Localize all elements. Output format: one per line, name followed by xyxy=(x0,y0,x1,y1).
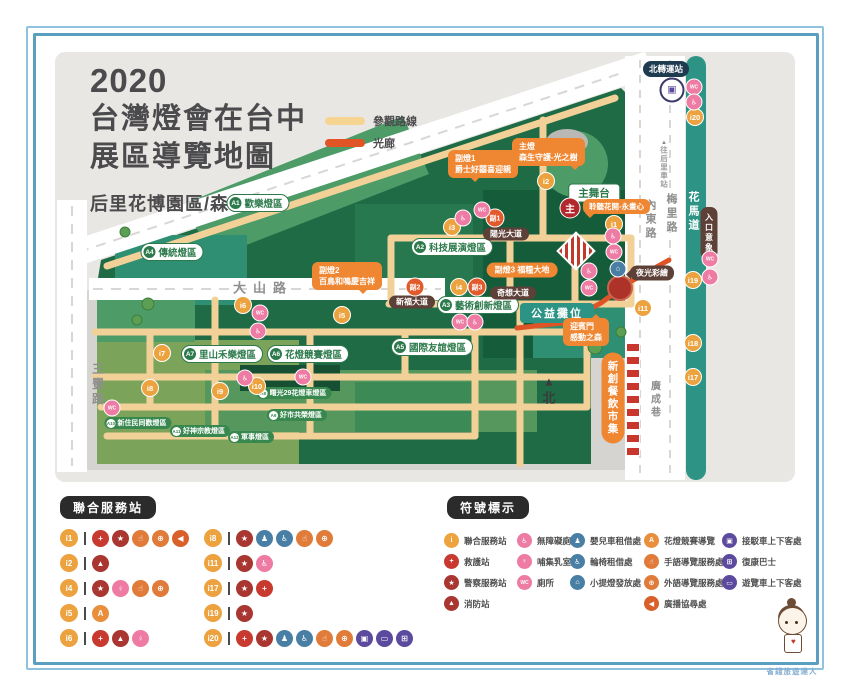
service-badge-i5: i5 xyxy=(60,604,78,622)
symbol-label-rehab_bus: 復康巴士 xyxy=(742,556,776,568)
tour-bus-stop-icon: ▭ xyxy=(722,575,737,590)
info-badge-i20: i20 xyxy=(686,108,704,126)
sign-language-icon: ☝ xyxy=(132,530,149,547)
service-divider-i2 xyxy=(84,557,86,570)
service-divider-i11 xyxy=(228,557,230,570)
service-row-i8: i8★♟♿☝⊕ xyxy=(204,528,333,548)
symbol-label-sign_language: 手語導覽服務處 xyxy=(664,556,724,568)
toilet-icon: WC xyxy=(104,400,121,417)
small-zone-circle-A11: A11 xyxy=(172,427,181,436)
service-row-i17: i17★+ xyxy=(204,578,273,598)
symbol-item-stroller_rental: ♟嬰兒車租借處 xyxy=(570,533,641,548)
accessible-toilet-icon: ♿ xyxy=(605,228,622,245)
callout-sub1-text: 爵士好囍喜迎親 xyxy=(455,164,511,175)
zone-circle-A6: A6 xyxy=(270,348,282,360)
sign-language-icon: ☝ xyxy=(644,554,659,569)
zone-label-A2: 科技展演燈區 xyxy=(429,240,486,254)
police-icon: ★ xyxy=(444,575,459,590)
accessible-toilet-icon: ♿ xyxy=(250,323,267,340)
symbol-label-competition_guide: 花燈競賽導覽 xyxy=(664,535,715,547)
zone-label-A4: 傳統燈區 xyxy=(158,245,196,259)
nursing-room-icon: ♀ xyxy=(132,630,149,647)
fire-icon: ▲ xyxy=(92,555,109,572)
symbol-label-wheelchair_rental: 輪椅租借處 xyxy=(590,556,633,568)
small-zone-label-A11: 好神宗教燈區 xyxy=(183,426,225,436)
accessible-toilet-icon: ♿ xyxy=(237,370,254,387)
info-badge-i5: i5 xyxy=(333,306,351,324)
avenue-pill-1: 新福大道 xyxy=(389,296,435,309)
zone-pill-A7: A7里山禾樂燈區 xyxy=(181,345,263,363)
symbol-item-sign_language: ☝手語導覽服務處 xyxy=(644,554,724,569)
symbol-label-toilet: 廁所 xyxy=(537,577,554,589)
toilet-icon: WC xyxy=(474,202,491,219)
service-row-i6: i6+▲♀ xyxy=(60,628,149,648)
accessible-toilet-icon: ♿ xyxy=(517,533,532,548)
zone-label-A1: 歡樂燈區 xyxy=(244,196,282,210)
toilet-icon: WC xyxy=(581,280,598,297)
police-icon: ★ xyxy=(236,580,253,597)
wheelchair-rental-icon: ♿ xyxy=(276,530,293,547)
zone-circle-A5: A5 xyxy=(394,341,406,353)
toilet-icon: WC xyxy=(295,369,312,386)
toilet-icon: WC xyxy=(606,244,623,261)
service-divider-i6 xyxy=(84,632,86,645)
zone-label-A7: 里山禾樂燈區 xyxy=(199,347,256,361)
road-label-sanfeng: 三豐路 xyxy=(90,363,107,408)
service-badge-i11: i11 xyxy=(204,554,222,572)
callout-main-title: 主燈 xyxy=(519,141,578,152)
competition-guide-icon: A xyxy=(92,605,109,622)
zone-circle-A7: A7 xyxy=(184,348,196,360)
police-icon: ★ xyxy=(236,555,253,572)
accessible-toilet-icon: ♿ xyxy=(686,94,703,111)
first-aid-icon: + xyxy=(92,630,109,647)
foreign-language-icon: ⊕ xyxy=(152,580,169,597)
accessible-toilet-icon: ♿ xyxy=(702,269,719,286)
road-label-meili: 梅里路 xyxy=(663,193,679,235)
small-zone-pill-A9: A9好市共榮燈區 xyxy=(267,409,327,421)
small-zone-pill-A11: A11好神宗教燈區 xyxy=(170,425,230,437)
bus-terminal-icon: ▣ xyxy=(660,78,685,103)
route-legend-corridor: 光廊 xyxy=(325,132,417,154)
mascot-bun xyxy=(787,598,796,607)
rehab-bus-icon: ⊞ xyxy=(722,554,737,569)
info-badge-i17: i17 xyxy=(684,368,702,386)
service-badge-i6: i6 xyxy=(60,629,78,647)
avenue-pill-2: 奇想大道 xyxy=(490,287,536,300)
wheelchair-rental-icon: ♿ xyxy=(296,630,313,647)
symbol-item-first_aid: +救護站 xyxy=(444,554,490,569)
union-service-icon: i xyxy=(444,533,459,548)
food-market-pill: 新創餐飲市集 xyxy=(602,353,625,444)
avenue-pill-0: 陽光大道 xyxy=(483,228,529,241)
small-zone-label-A9: 好市共榮燈區 xyxy=(280,410,322,420)
toilet-icon: WC xyxy=(702,251,719,268)
title-block: 2020 台灣燈會在台中 展區導覽地圖 后里花博園區/森林園區 xyxy=(90,62,307,216)
symbol-label-first_aid: 救護站 xyxy=(464,556,490,568)
small-zone-label-A8: 曙光29花燈車燈區 xyxy=(270,388,327,398)
zone-pill-A5: A5國際友誼燈區 xyxy=(391,338,473,356)
night-paint-pill: 夜光彩繪 xyxy=(630,266,674,281)
road-label-guangcheng: 廣成巷 xyxy=(647,381,662,420)
light-corridor-swatch xyxy=(325,139,365,147)
nursing-room-icon: ♀ xyxy=(112,580,129,597)
service-badge-i8: i8 xyxy=(204,529,222,547)
service-row-i1: i1+★☝⊕◀ xyxy=(60,528,189,548)
accessible-toilet-icon: ♿ xyxy=(467,314,484,331)
title-year: 2020 xyxy=(90,62,307,100)
callout-sub2-title: 副燈2 xyxy=(319,265,375,276)
wheelchair-rental-icon: ♿ xyxy=(570,554,585,569)
symbol-label-nursing_room: 哺集乳室 xyxy=(537,556,571,568)
service-row-i2: i2▲ xyxy=(60,553,109,573)
visit-route-swatch xyxy=(325,117,365,125)
symbol-item-wheelchair_rental: ♿輪椅租借處 xyxy=(570,554,633,569)
compass-label: 北 xyxy=(542,388,555,407)
service-divider-i17 xyxy=(228,582,230,595)
foreign-language-icon: ⊕ xyxy=(336,630,353,647)
welcome-gate-marker xyxy=(607,275,633,301)
mascot-eyes xyxy=(785,621,788,624)
symbol-label-shuttle_stop: 接駁車上下客處 xyxy=(742,535,802,547)
small-zone-circle-A10: A10 xyxy=(107,419,116,428)
accessible-toilet-icon: ♿ xyxy=(256,555,273,572)
to-houli-text: 往后里車站 xyxy=(659,146,670,189)
callout-sub-lantern-3: 副燈3 福糧大地 xyxy=(487,263,558,278)
foreign-language-icon: ⊕ xyxy=(316,530,333,547)
tour-bus-stop-icon: ▭ xyxy=(376,630,393,647)
service-row-i20: i20+★♟♿☝⊕▣▭⊞ xyxy=(204,628,413,648)
route-legend: 參觀路線 光廊 xyxy=(325,110,417,154)
info-badge-i11: i11 xyxy=(634,299,652,317)
small-zone-label-A10: 新住民同歡燈區 xyxy=(118,418,167,428)
callout-sub1-title: 副燈1 xyxy=(455,153,511,164)
sign-language-icon: ☝ xyxy=(316,630,333,647)
service-row-i19: i19★ xyxy=(204,603,253,623)
symbol-label-police: 警察服務站 xyxy=(464,577,507,589)
symbol-item-competition_guide: A花燈競賽導覽 xyxy=(644,533,715,548)
small-zone-pill-A10: A10新住民同歡燈區 xyxy=(105,417,172,429)
stroller-rental-icon: ♟ xyxy=(276,630,293,647)
broadcast-icon: ◀ xyxy=(644,596,659,611)
mascot: ♥ xyxy=(764,596,820,660)
police-icon: ★ xyxy=(256,630,273,647)
police-icon: ★ xyxy=(112,530,129,547)
callout-gate-text: 感動之森 xyxy=(570,332,602,343)
symbol-label-lantern: 小提燈發放處 xyxy=(590,577,641,589)
zone-pill-A2: A2科技展演燈區 xyxy=(411,238,493,256)
info-badge-i8: i8 xyxy=(141,379,159,397)
symbol-item-fire: ▲消防站 xyxy=(444,596,490,611)
heart-icon: ♥ xyxy=(791,638,796,646)
symbol-item-toilet: WC廁所 xyxy=(517,575,554,590)
symbol-label-tour_bus_stop: 遊覽車上下客處 xyxy=(742,577,802,589)
symbol-label-stroller_rental: 嬰兒車租借處 xyxy=(590,535,641,547)
small-zone-circle-A9: A9 xyxy=(269,411,278,420)
broadcast-icon: ◀ xyxy=(172,530,189,547)
service-divider-i20 xyxy=(228,632,230,645)
route-legend-visit: 參觀路線 xyxy=(325,110,417,132)
service-divider-i8 xyxy=(228,532,230,545)
shuttle-stop-icon: ▣ xyxy=(356,630,373,647)
competition-guide-icon: A xyxy=(644,533,659,548)
info-badge-i9: i9 xyxy=(211,382,229,400)
first-aid-icon: + xyxy=(444,554,459,569)
service-divider-i19 xyxy=(228,607,230,620)
callout-main-text: 森生守護-光之樹 xyxy=(519,152,578,163)
service-divider-i1 xyxy=(84,532,86,545)
zone-pill-A6: A6花燈競賽燈區 xyxy=(267,345,349,363)
info-badge-i18: i18 xyxy=(684,334,702,352)
symbol-item-foreign_language: ⊕外語導覽服務處 xyxy=(644,575,724,590)
lantern-icon: ⌂ xyxy=(610,261,627,278)
service-row-i11: i11★♿ xyxy=(204,553,273,573)
lantern-icon: ⌂ xyxy=(570,575,585,590)
service-row-i4: i4★♀☝⊕ xyxy=(60,578,169,598)
compass-arrow-icon: ▲ xyxy=(543,376,555,388)
info-badge-i6: i6 xyxy=(234,296,252,314)
shuttle-stop-icon: ▣ xyxy=(722,533,737,548)
service-badge-i17: i17 xyxy=(204,579,222,597)
service-divider-i5 xyxy=(84,607,86,620)
stroller-rental-icon: ♟ xyxy=(570,533,585,548)
police-icon: ★ xyxy=(236,605,253,622)
callout-sub-lantern-1: 副燈1 爵士好囍喜迎親 xyxy=(448,150,518,178)
info-badge-i4: i4 xyxy=(450,278,468,296)
mascot-caption: 省錢旅遊達人 xyxy=(752,666,832,677)
zone-label-A3: 藝術創新燈區 xyxy=(455,298,512,312)
road-label-dashan: 大山路 xyxy=(233,278,293,297)
toilet-icon: WC xyxy=(252,305,269,322)
fire-icon: ▲ xyxy=(112,630,129,647)
north-terminal-badge: 北轉運站 xyxy=(643,61,689,77)
callout-main-lantern: 主燈 森生守護-光之樹 xyxy=(512,138,585,166)
foreign-language-icon: ⊕ xyxy=(644,575,659,590)
zone-label-A5: 國際友誼燈區 xyxy=(409,340,466,354)
toilet-icon: WC xyxy=(517,575,532,590)
visit-route-label: 參觀路線 xyxy=(373,113,417,129)
small-zone-pill-A12: A12軍事燈區 xyxy=(228,431,274,443)
nursing-room-icon: ♀ xyxy=(517,554,532,569)
rehab-bus-icon: ⊞ xyxy=(396,630,413,647)
zone-label-A6: 花燈競賽燈區 xyxy=(285,347,342,361)
title-line2: 台灣燈會在台中 xyxy=(90,100,307,138)
info-badge-i2: i2 xyxy=(537,172,555,190)
zone-pill-A4: A4傳統燈區 xyxy=(140,243,203,261)
service-badge-i2: i2 xyxy=(60,554,78,572)
compass-north: ▲ 北 xyxy=(542,376,555,407)
services-header: 聯合服務站 xyxy=(60,496,156,519)
accessible-toilet-icon: ♿ xyxy=(581,263,598,280)
mascot-head xyxy=(778,607,807,635)
service-badge-i19: i19 xyxy=(204,604,222,622)
symbol-label-fire: 消防站 xyxy=(464,598,490,610)
poster-canvas: 2020 台灣燈會在台中 展區導覽地圖 后里花博園區/森林園區 參觀路線 光廊 … xyxy=(0,0,850,685)
first-aid-icon: + xyxy=(256,580,273,597)
zone-circle-A2: A2 xyxy=(414,241,426,253)
symbol-label-broadcast: 廣播協尋處 xyxy=(664,598,707,610)
callout-gate-title: 迎賓門 xyxy=(570,321,602,332)
sub-lantern-badge-2: 副2 xyxy=(406,278,425,297)
symbol-item-union_service: i聯合服務站 xyxy=(444,533,507,548)
main-lantern-badge: 主 xyxy=(560,198,581,219)
symbol-item-lantern: ⌂小提燈發放處 xyxy=(570,575,641,590)
service-badge-i4: i4 xyxy=(60,579,78,597)
service-divider-i4 xyxy=(84,582,86,595)
symbol-item-broadcast: ◀廣播協尋處 xyxy=(644,596,707,611)
small-zone-pill-A8: A8曙光29花燈車燈區 xyxy=(257,387,332,399)
police-icon: ★ xyxy=(236,530,253,547)
small-zone-label-A12: 軍事燈區 xyxy=(241,432,269,442)
zone-pill-A1: A1歡樂燈區 xyxy=(226,194,289,212)
sign-language-icon: ☝ xyxy=(296,530,313,547)
foreign-language-icon: ⊕ xyxy=(152,530,169,547)
symbols-header: 符號標示 xyxy=(447,496,529,519)
callout-listen-flower: 聆聽花開-永晝心 xyxy=(583,199,650,214)
light-corridor-label: 光廊 xyxy=(373,135,395,151)
first-aid-icon: + xyxy=(236,630,253,647)
zone-circle-A1: A1 xyxy=(229,197,241,209)
police-icon: ★ xyxy=(92,580,109,597)
callout-sub2-text: 百鳥和鳴慶吉祥 xyxy=(319,276,375,287)
symbol-item-rehab_bus: ⊞復康巴士 xyxy=(722,554,776,569)
sub-lantern-badge-3: 副3 xyxy=(468,278,487,297)
service-row-i5: i5A xyxy=(60,603,109,623)
zone-circle-A4: A4 xyxy=(143,246,155,258)
fire-icon: ▲ xyxy=(444,596,459,611)
symbol-item-police: ★警察服務站 xyxy=(444,575,507,590)
callout-welcome-gate: 迎賓門 感動之森 xyxy=(563,318,609,346)
service-badge-i1: i1 xyxy=(60,529,78,547)
symbol-label-foreign_language: 外語導覽服務處 xyxy=(664,577,724,589)
first-aid-icon: + xyxy=(92,530,109,547)
to-houli-station-label: ▲ 往后里車站 xyxy=(659,140,670,191)
symbol-label-union_service: 聯合服務站 xyxy=(464,535,507,547)
title-line3: 展區導覽地圖 xyxy=(90,138,307,176)
road-label-huamadao: 花馬道 xyxy=(685,191,701,233)
info-badge-i7: i7 xyxy=(153,344,171,362)
small-zone-circle-A12: A12 xyxy=(230,433,239,442)
symbol-item-nursing_room: ♀哺集乳室 xyxy=(517,554,571,569)
symbol-item-shuttle_stop: ▣接駁車上下客處 xyxy=(722,533,802,548)
callout-sub-lantern-2: 副燈2 百鳥和鳴慶吉祥 xyxy=(312,262,382,290)
zone-circle-A3: A3 xyxy=(440,299,452,311)
callout-listen-text: 聆聽花開-永晝心 xyxy=(589,201,644,212)
symbol-item-tour_bus_stop: ▭遊覽車上下客處 xyxy=(722,575,802,590)
sign-language-icon: ☝ xyxy=(132,580,149,597)
info-badge-i19: i19 xyxy=(684,271,702,289)
accessible-toilet-icon: ♿ xyxy=(455,210,472,227)
stroller-rental-icon: ♟ xyxy=(256,530,273,547)
service-badge-i20: i20 xyxy=(204,629,222,647)
